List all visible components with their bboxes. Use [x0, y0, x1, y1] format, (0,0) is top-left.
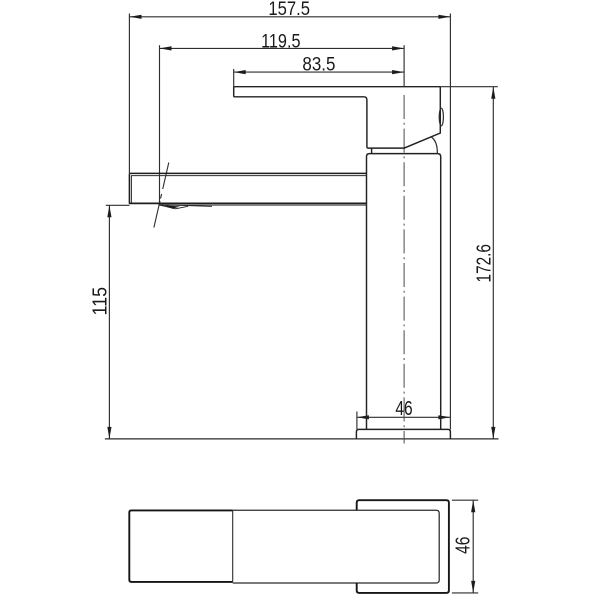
svg-text:172.6: 172.6 [473, 244, 495, 282]
svg-text:115: 115 [90, 287, 112, 316]
svg-text:46: 46 [452, 537, 474, 554]
svg-text:119.5: 119.5 [261, 32, 300, 53]
svg-text:157.5: 157.5 [268, 0, 310, 20]
svg-text:83.5: 83.5 [302, 55, 335, 76]
svg-text:46: 46 [395, 398, 412, 420]
